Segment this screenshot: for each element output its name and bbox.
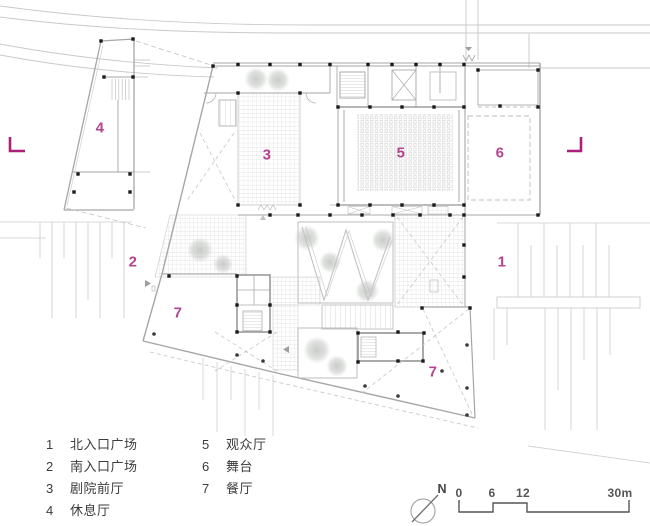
zone-label-3: 3 <box>263 148 272 163</box>
scale-end-label: 30m <box>608 486 633 500</box>
zone-label-2: 2 <box>129 255 138 270</box>
scale-tick-0: 0 <box>456 486 463 500</box>
zone-label-4: 4 <box>96 121 105 136</box>
roof-dashed-lines <box>66 41 211 228</box>
scale-bar-icon <box>459 500 629 512</box>
scale-tick-12: 12 <box>516 486 530 500</box>
plaza-north-steps <box>494 223 650 430</box>
north-arrow-icon <box>411 495 438 523</box>
zone-label-1: 1 <box>498 255 507 270</box>
zone-label-5: 5 <box>397 146 406 161</box>
wing-lounge-walls <box>64 39 150 210</box>
floor-plan-drawing <box>0 0 650 526</box>
plaza-south-steps <box>0 222 132 318</box>
floor-plan-page: 4 2 3 5 6 1 7 7 1 北入口广场 2 南入口广场 3 剧院前厅 4… <box>0 0 650 526</box>
section-mark-left-icon <box>10 137 25 151</box>
zone-label-7a: 7 <box>174 306 183 321</box>
restaurant-west <box>215 275 277 371</box>
zone-label-7b: 7 <box>429 365 438 380</box>
scale-tick-6: 6 <box>489 486 496 500</box>
section-mark-right-icon <box>567 137 581 151</box>
north-label: N <box>437 482 446 496</box>
backstage-rooms <box>337 66 538 107</box>
structural-columns <box>72 37 539 363</box>
zone-label-6: 6 <box>496 146 505 161</box>
